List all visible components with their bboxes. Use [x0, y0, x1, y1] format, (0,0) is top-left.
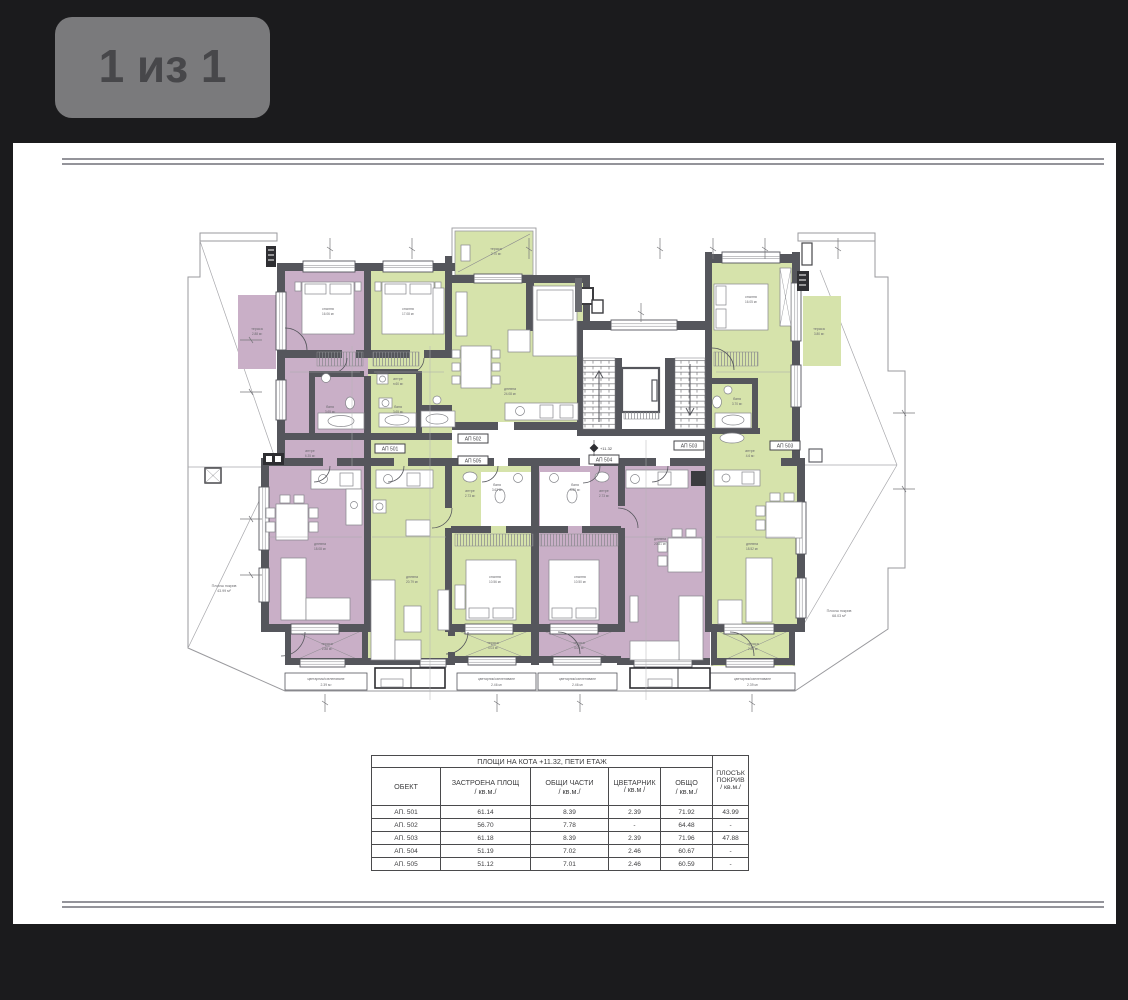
svg-text:2.46 м²: 2.46 м² — [572, 683, 584, 687]
svg-text:баня: баня — [733, 397, 741, 401]
svg-text:тераса: тераса — [573, 641, 584, 645]
svg-text:Плосък покрив: Плосък покрив — [827, 609, 852, 613]
svg-text:дневна: дневна — [314, 542, 326, 546]
svg-text:3.65 м²: 3.65 м² — [325, 410, 335, 414]
svg-text:2.73 м²: 2.73 м² — [465, 494, 475, 498]
svg-text:цветарник/озеленяване: цветарник/озеленяване — [307, 677, 344, 681]
svg-text:20.79 м²: 20.79 м² — [406, 580, 418, 584]
svg-text:2.39 м²: 2.39 м² — [747, 683, 759, 687]
svg-text:дневна: дневна — [406, 575, 418, 579]
svg-text:АП 502: АП 502 — [465, 437, 482, 443]
svg-text:3.62 м²: 3.62 м² — [570, 488, 580, 492]
svg-text:16.06 м²: 16.06 м² — [322, 312, 334, 316]
svg-text:баня: баня — [394, 405, 402, 409]
svg-text:АП 503: АП 503 — [777, 444, 794, 450]
svg-text:н.60 м²: н.60 м² — [393, 382, 403, 386]
svg-text:6.35 м²: 6.35 м² — [305, 454, 315, 458]
svg-text:антре: антре — [465, 489, 475, 493]
svg-text:4.03 м²: 4.03 м² — [488, 646, 498, 650]
svg-text:3.70 м²: 3.70 м² — [732, 402, 742, 406]
svg-text:дневна: дневна — [654, 537, 666, 541]
svg-text:тераса: тераса — [747, 642, 758, 646]
svg-text:2.70 м²: 2.70 м² — [491, 252, 501, 256]
svg-text:тераса: тераса — [321, 642, 332, 646]
svg-text:антре: антре — [745, 449, 755, 453]
svg-text:спалня: спалня — [745, 295, 757, 299]
svg-text:тераса: тераса — [251, 327, 262, 331]
svg-text:антре: антре — [305, 449, 315, 453]
svg-text:24.08 м²: 24.08 м² — [504, 392, 516, 396]
svg-text:68.03 м²: 68.03 м² — [832, 614, 846, 618]
svg-text:спалня: спалня — [489, 575, 501, 579]
svg-text:2.88 м²: 2.88 м² — [252, 332, 262, 336]
svg-text:4.03 м²: 4.03 м² — [574, 646, 584, 650]
svg-text:баня: баня — [326, 405, 334, 409]
svg-text:цветарник/озеленяване: цветарник/озеленяване — [559, 677, 596, 681]
svg-text:2.73 м²: 2.73 м² — [599, 494, 609, 498]
svg-text:АП 503: АП 503 — [681, 444, 698, 450]
svg-text:спалня: спалня — [574, 575, 586, 579]
svg-text:цветарник/озеленяване: цветарник/озеленяване — [734, 677, 771, 681]
svg-text:антре: антре — [599, 489, 609, 493]
svg-text:тераса: тераса — [487, 641, 498, 645]
svg-text:тераса: тераса — [813, 327, 824, 331]
svg-text:+11.32: +11.32 — [600, 446, 613, 451]
svg-text:дневна: дневна — [504, 387, 516, 391]
svg-text:3.63 м²: 3.63 м² — [492, 488, 502, 492]
svg-text:АП 505: АП 505 — [465, 459, 482, 465]
svg-text:20.81 м²: 20.81 м² — [654, 542, 666, 546]
svg-text:10.50 м²: 10.50 м² — [574, 580, 586, 584]
svg-text:баня: баня — [493, 483, 501, 487]
svg-text:спалня: спалня — [402, 307, 414, 311]
svg-text:дневна: дневна — [746, 542, 758, 546]
svg-text:4.6 м²: 4.6 м² — [746, 454, 755, 458]
svg-text:18.52 м²: 18.52 м² — [746, 547, 758, 551]
svg-text:тераса: тераса — [490, 247, 501, 251]
svg-text:2.86 м²: 2.86 м² — [748, 647, 758, 651]
svg-text:2.39 м²: 2.39 м² — [320, 683, 332, 687]
svg-text:43.99 м²: 43.99 м² — [217, 589, 231, 593]
svg-text:17.08 м²: 17.08 м² — [402, 312, 414, 316]
svg-text:3.65 м²: 3.65 м² — [393, 410, 403, 414]
svg-text:спалня: спалня — [322, 307, 334, 311]
svg-text:2.88 м²: 2.88 м² — [322, 647, 332, 651]
svg-text:3.80 м²: 3.80 м² — [814, 332, 824, 336]
svg-text:2.46 м²: 2.46 м² — [491, 683, 503, 687]
svg-text:16.05 м²: 16.05 м² — [745, 300, 757, 304]
svg-text:10.56 м²: 10.56 м² — [489, 580, 501, 584]
svg-text:АП 501: АП 501 — [382, 447, 399, 453]
svg-text:АП 504: АП 504 — [596, 458, 613, 464]
svg-text:18.08 м²: 18.08 м² — [314, 547, 326, 551]
svg-text:баня: баня — [571, 483, 579, 487]
svg-text:цветарник/озеленяване: цветарник/озеленяване — [478, 677, 515, 681]
svg-text:антре: антре — [393, 377, 403, 381]
svg-text:Плосък покрив: Плосък покрив — [212, 584, 237, 588]
